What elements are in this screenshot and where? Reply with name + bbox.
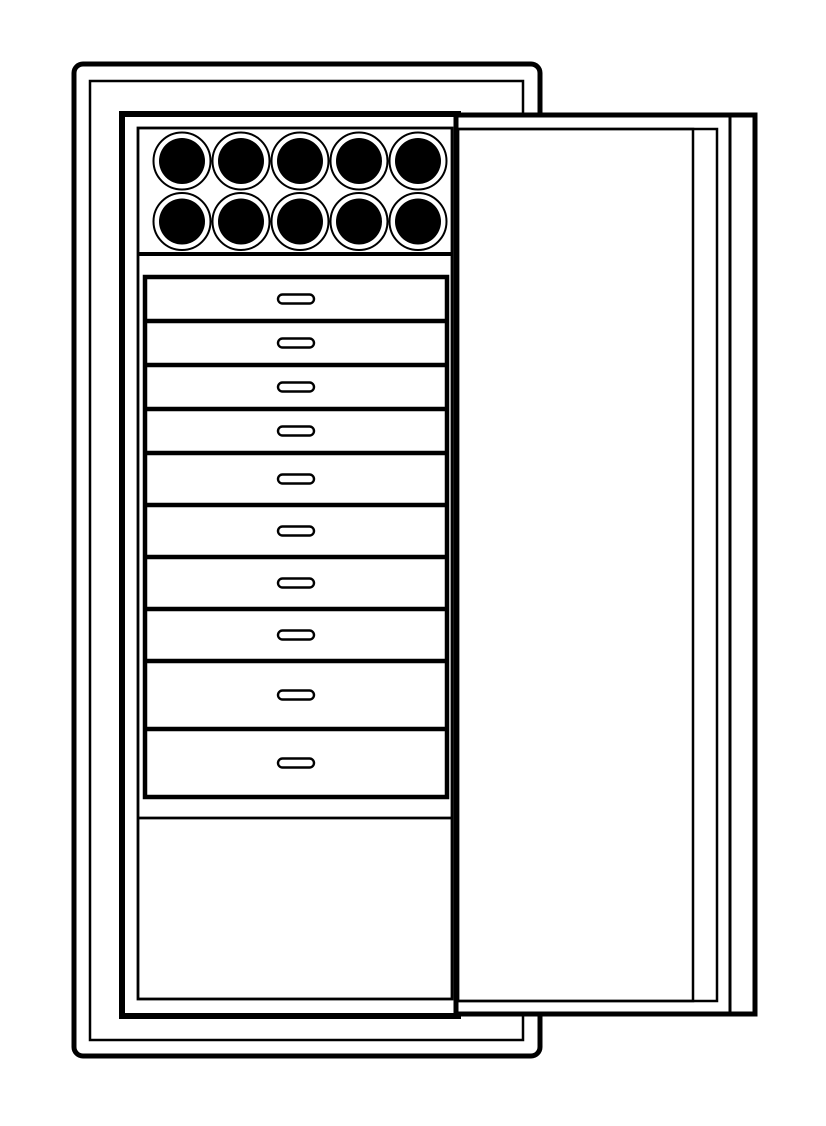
drawer-handle-icon — [278, 295, 314, 304]
winder-slot-disc — [277, 138, 323, 184]
door-outline — [456, 115, 755, 1014]
open-safe-cabinet-illustration — [0, 0, 826, 1126]
winder-slot-disc — [159, 138, 205, 184]
drawer-box-outline — [145, 277, 447, 797]
illustration-canvas — [0, 0, 826, 1126]
drawer-handle-icon — [278, 339, 314, 348]
drawer-handle-icon — [278, 427, 314, 436]
drawer-stack — [145, 277, 447, 797]
drawer-handle-icon — [278, 579, 314, 588]
winder-slot-disc — [218, 199, 264, 245]
winder-slot-disc — [395, 199, 441, 245]
winder-slot-disc — [277, 199, 323, 245]
winder-slot-disc — [336, 138, 382, 184]
drawer-handle-icon — [278, 527, 314, 536]
winder-slot-disc — [395, 138, 441, 184]
drawer-handle-icon — [278, 383, 314, 392]
drawer-handle-icon — [278, 759, 314, 768]
drawer-handle-icon — [278, 691, 314, 700]
winder-slot-disc — [218, 138, 264, 184]
open-door — [456, 115, 755, 1014]
winder-slot-disc — [336, 199, 382, 245]
drawer-handle-icon — [278, 475, 314, 484]
winder-slot-disc — [159, 199, 205, 245]
drawer-handle-icon — [278, 631, 314, 640]
